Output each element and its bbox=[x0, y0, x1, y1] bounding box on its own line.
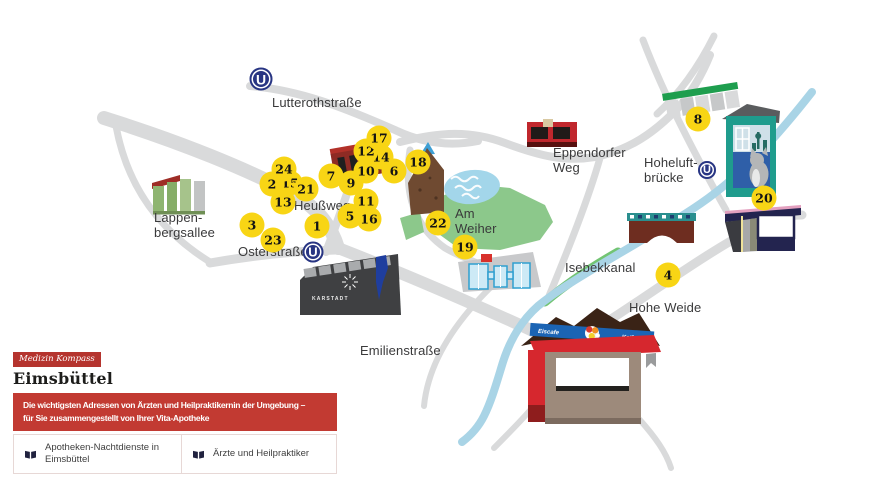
map-marker[interactable]: 23 bbox=[261, 228, 286, 253]
medizin-kompass-tag: Medizin Kompass bbox=[13, 352, 101, 367]
map-marker[interactable]: 5 bbox=[338, 204, 363, 229]
map-marker-number: 3 bbox=[248, 218, 257, 233]
map-marker[interactable]: 4 bbox=[656, 263, 681, 288]
map-marker-number: 2 bbox=[268, 177, 277, 192]
map-marker-number: 17 bbox=[370, 131, 387, 146]
map-marker[interactable]: 21 bbox=[294, 177, 319, 202]
book-icon bbox=[24, 449, 37, 460]
legend-item-label: Ärzte und Heilpraktiker bbox=[213, 448, 309, 460]
map-marker[interactable]: 18 bbox=[406, 150, 431, 175]
map-marker-number: 8 bbox=[694, 112, 703, 127]
map-marker-number: 6 bbox=[390, 164, 399, 179]
small-green-patch bbox=[400, 212, 424, 240]
map-marker-number: 22 bbox=[429, 216, 446, 231]
map-marker[interactable]: 20 bbox=[752, 186, 777, 211]
map-marker-number: 23 bbox=[264, 233, 281, 248]
building-lappenbergsallee bbox=[152, 175, 205, 215]
map-marker-number: 24 bbox=[275, 162, 292, 177]
map-marker-number: 1 bbox=[313, 219, 322, 234]
map-marker-number: 21 bbox=[297, 182, 314, 197]
building-teal-gallery bbox=[722, 104, 780, 197]
map-marker[interactable]: 17 bbox=[367, 126, 392, 151]
map-marker[interactable]: 8 bbox=[686, 107, 711, 132]
map-canvas: KARSTADT bbox=[0, 0, 870, 490]
map-marker-number: 5 bbox=[346, 209, 355, 224]
map-marker-number: 18 bbox=[409, 155, 426, 170]
map-marker-number: 4 bbox=[664, 268, 673, 283]
karstadt-sign: KARSTADT bbox=[312, 296, 349, 302]
map-marker[interactable]: 1 bbox=[305, 214, 330, 239]
map-marker-number: 20 bbox=[755, 191, 772, 206]
legend-item-aerzte-heilpraktiker[interactable]: Ärzte und Heilpraktiker bbox=[181, 435, 336, 473]
building-eppendorfer-storefront bbox=[527, 119, 577, 147]
map-marker-number: 13 bbox=[274, 195, 291, 210]
legend-item-apotheken-nachtdienste[interactable]: Apotheken-Nachtdienste in Eimsbüttel bbox=[14, 435, 181, 473]
map-marker[interactable]: 22 bbox=[426, 211, 451, 236]
intro-banner: Die wichtigsten Adressen von Ärzten und … bbox=[13, 393, 337, 431]
info-panel: Medizin Kompass Eimsbüttel Die wichtigst… bbox=[13, 348, 337, 474]
map-marker[interactable]: 19 bbox=[453, 235, 478, 260]
legend-row: Apotheken-Nachtdienste in Eimsbüttel Ärz… bbox=[13, 434, 337, 474]
map-marker-number: 16 bbox=[360, 212, 377, 227]
district-title: Eimsbüttel bbox=[13, 369, 337, 388]
map-marker-number: 9 bbox=[347, 176, 356, 191]
map-marker-number: 7 bbox=[327, 169, 336, 184]
building-karstadt: KARSTADT bbox=[300, 254, 401, 315]
isebek-bridge bbox=[627, 213, 696, 243]
building-eiscafe-kiosk: Eiscafe Kaifu bbox=[521, 308, 661, 424]
book-icon bbox=[192, 449, 205, 460]
building-navy-kiosk bbox=[725, 205, 801, 252]
legend-item-label: Apotheken-Nachtdienste in Eimsbüttel bbox=[45, 442, 167, 466]
map-marker[interactable]: 24 bbox=[272, 157, 297, 182]
map-marker-number: 19 bbox=[456, 240, 473, 255]
